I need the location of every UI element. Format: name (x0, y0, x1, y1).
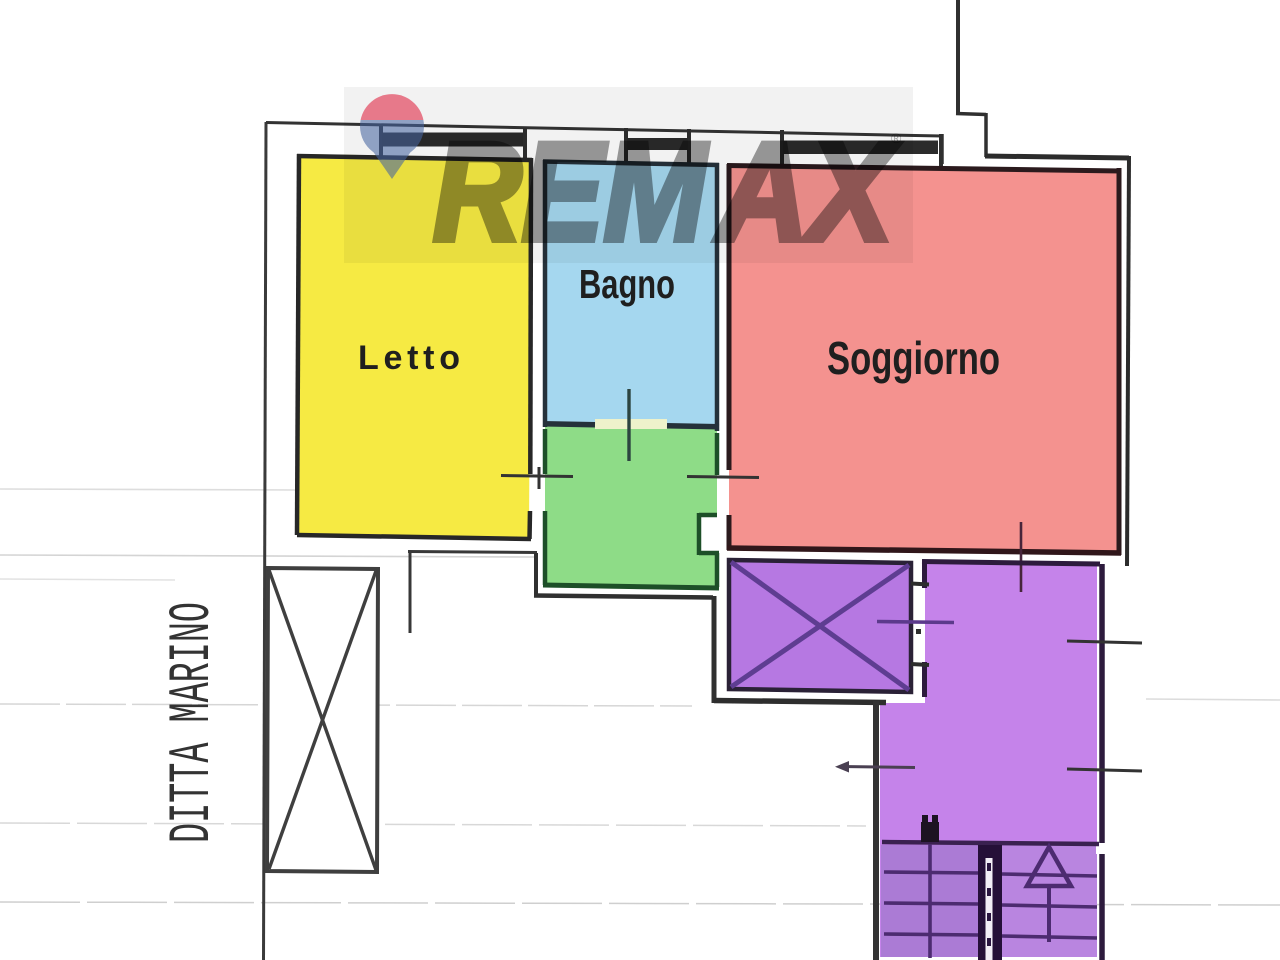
svg-text:Soggiorno: Soggiorno (827, 332, 1000, 384)
svg-text:Letto: Letto (358, 339, 460, 377)
svg-text:AX: AX (714, 113, 900, 270)
svg-text:®: ® (891, 130, 902, 146)
svg-text:REM: REM (433, 113, 709, 270)
svg-text:DITTA MARINO: DITTA MARINO (161, 602, 226, 843)
